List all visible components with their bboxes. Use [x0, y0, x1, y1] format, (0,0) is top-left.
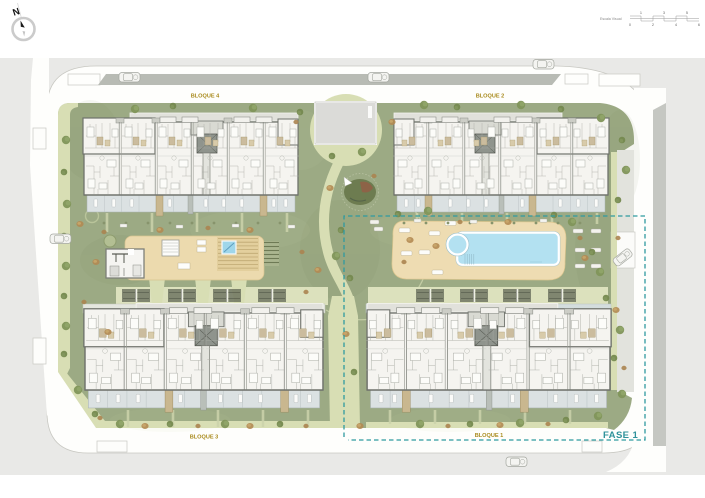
svg-text:0: 0 — [629, 23, 631, 27]
svg-text:BLOQUE 3: BLOQUE 3 — [190, 435, 219, 441]
svg-text:5: 5 — [686, 11, 688, 15]
svg-text:Escala Visual: Escala Visual — [600, 17, 622, 21]
svg-text:BLOQUE 4: BLOQUE 4 — [191, 94, 220, 100]
svg-text:3: 3 — [663, 11, 665, 15]
svg-text:FASE 1: FASE 1 — [603, 430, 638, 441]
svg-text:6: 6 — [698, 23, 700, 27]
svg-text:2: 2 — [652, 23, 654, 27]
svg-text:4: 4 — [675, 23, 677, 27]
svg-text:BLOQUE 1: BLOQUE 1 — [475, 433, 504, 439]
svg-text:BLOQUE 2: BLOQUE 2 — [476, 94, 505, 100]
svg-text:1: 1 — [640, 11, 642, 15]
